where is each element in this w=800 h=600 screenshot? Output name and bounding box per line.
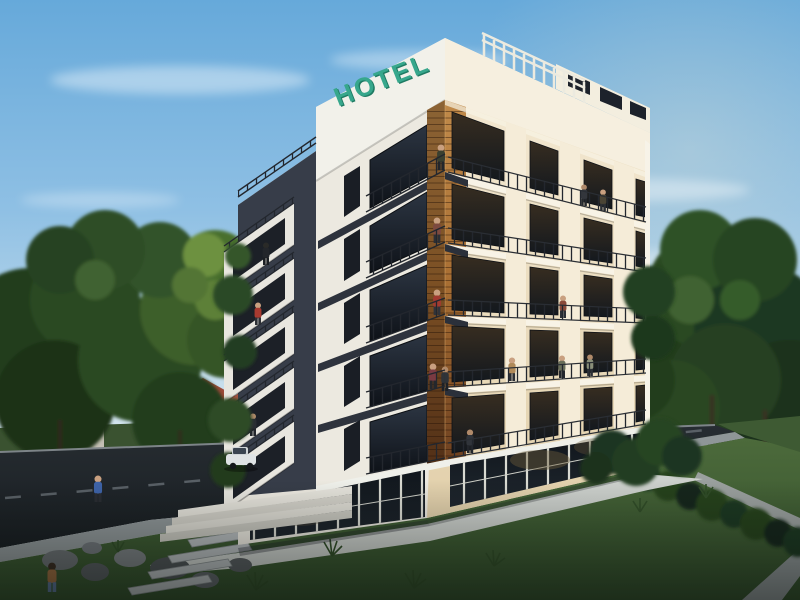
scene-render: HOTEL HOTEL — [0, 0, 800, 600]
piers-right — [506, 122, 634, 450]
foreground-vignette — [0, 480, 800, 600]
hotel-exterior-render: HOTEL HOTEL — [0, 0, 800, 600]
